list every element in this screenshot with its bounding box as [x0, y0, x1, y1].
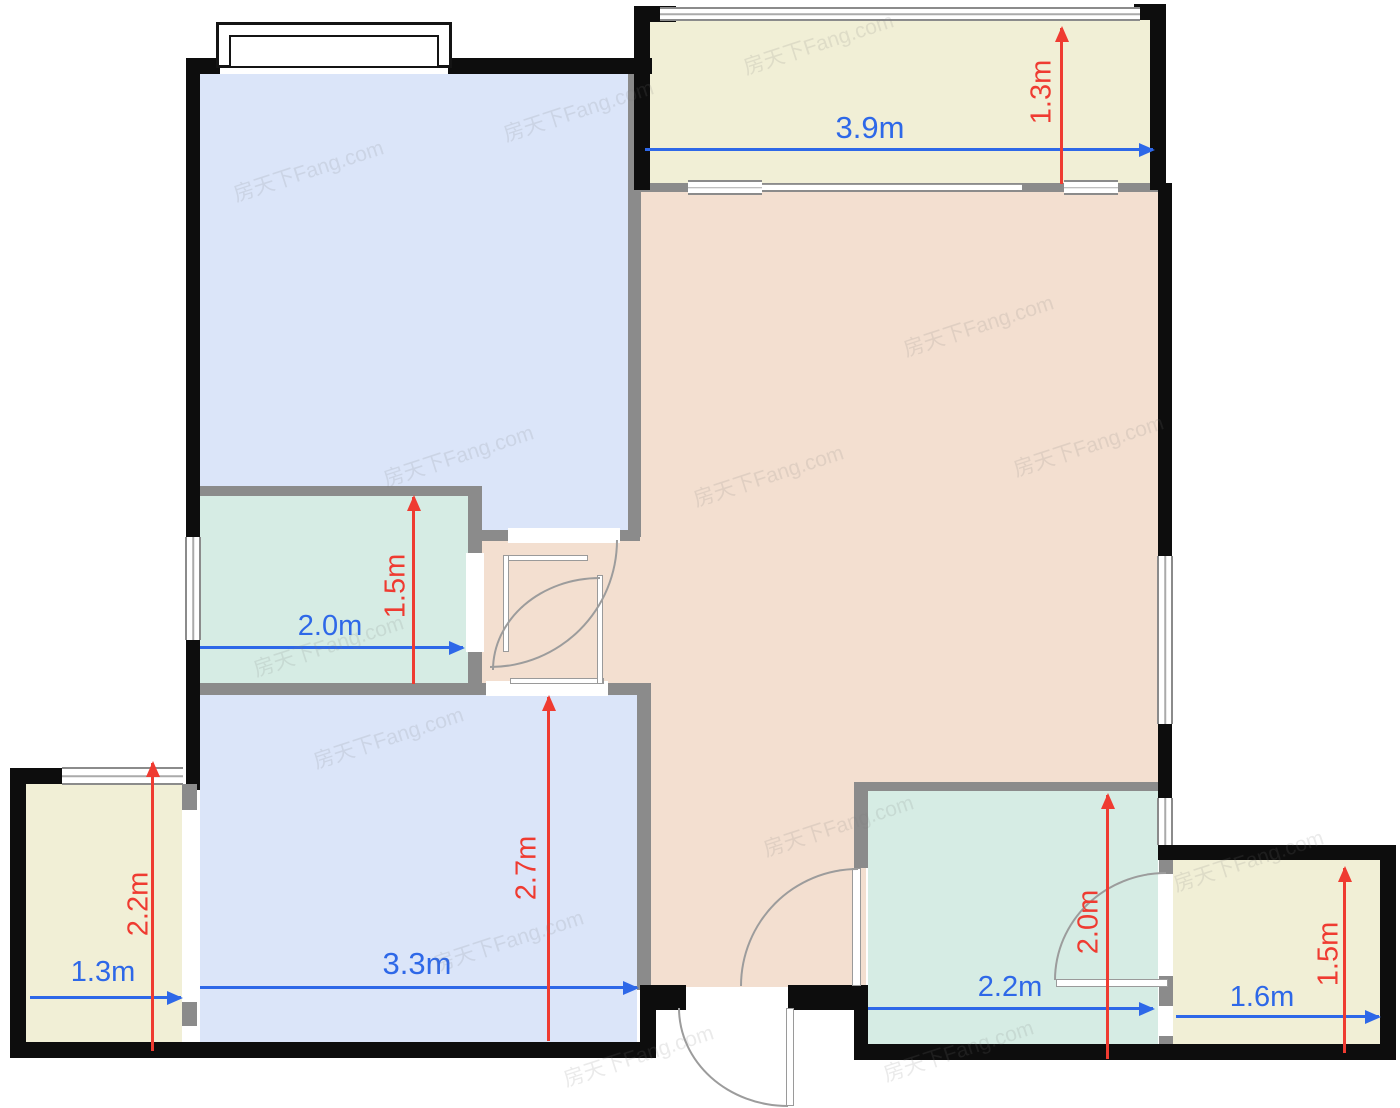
dim-label-bathroom-width: 2.0m	[298, 610, 362, 643]
room-balcony-right	[1172, 860, 1380, 1048]
divider-cap-bottom	[182, 1002, 197, 1026]
dim-label-balcony-right-width: 1.6m	[1230, 981, 1294, 1014]
wall-kitchen-left-upper	[854, 782, 868, 868]
wall-kitchen-top	[854, 782, 1160, 791]
divider-cap-top	[182, 784, 197, 810]
window-bathroom-left	[185, 537, 201, 640]
bay-window-inner	[229, 35, 439, 68]
dim-line-balcony-right-width	[1176, 1015, 1379, 1018]
wall-bedroom-bottom-right	[637, 683, 651, 990]
floor-plan: 3.9m 2.0m 3.3m 1.3m 2.2m 1.6m 1.3m 1.5m …	[0, 0, 1400, 1108]
dim-label-kitchen-width: 2.2m	[978, 971, 1042, 1004]
wall-bathroom-top	[196, 486, 470, 496]
room-bathroom	[200, 496, 468, 683]
dim-line-bedroom-bottom-width	[200, 986, 637, 989]
dim-label-balcony-left-width: 1.3m	[71, 956, 135, 989]
dim-label-balcony-right-depth: 1.5m	[1313, 922, 1346, 986]
wall-right-mid	[1158, 724, 1172, 800]
door-arc-entrance	[678, 1008, 788, 1107]
window-kitchen-right	[1157, 798, 1173, 845]
room-living	[638, 192, 1158, 790]
dim-line-balcony-top-width	[645, 148, 1153, 151]
room-balcony-left	[26, 784, 182, 1042]
dim-label-bathroom-depth: 1.5m	[380, 554, 413, 618]
wall-bottom-right	[854, 1044, 1396, 1060]
wall-left-lower	[186, 640, 200, 790]
wall-balcony-right-side	[1380, 845, 1396, 1060]
dim-line-bathroom-width	[200, 646, 463, 649]
door-opening-bathroom	[466, 553, 484, 652]
dim-line-kitchen-width	[868, 1007, 1153, 1010]
room-bedroom-bottom	[200, 695, 637, 1042]
door-leaf-hall-c	[510, 678, 604, 684]
wall-entry-left	[656, 985, 686, 1010]
wall-bedroom-se	[640, 985, 656, 1058]
window-living-balcony-b	[1064, 180, 1118, 195]
dim-label-bedroom-bottom-depth: 2.7m	[511, 836, 544, 900]
dim-line-balcony-top-depth	[1060, 28, 1063, 184]
wall-right-upper	[1158, 183, 1172, 556]
wall-balcony-left-side	[10, 768, 26, 1058]
dim-label-balcony-top-depth: 1.3m	[1026, 60, 1059, 124]
wall-kitchen-left-lower	[854, 985, 868, 1044]
wall-top-left-b	[448, 58, 652, 74]
door-leaf-balcony-right	[1056, 979, 1168, 987]
room-bedroom-top	[200, 74, 638, 488]
sliding-track-balcony-top	[762, 184, 1022, 190]
window-balcony-left-top	[62, 767, 183, 785]
room-balcony-top	[650, 20, 1158, 183]
wall-balcony-top-right	[1150, 4, 1166, 190]
dim-label-bedroom-bottom-width: 3.3m	[383, 946, 452, 982]
dim-line-balcony-left-width	[30, 996, 181, 999]
dim-line-bedroom-bottom-depth	[547, 697, 550, 1041]
wall-bottom-left	[10, 1042, 656, 1058]
window-living-right	[1157, 556, 1173, 724]
dim-label-kitchen-depth: 2.0m	[1073, 890, 1106, 954]
dim-line-kitchen-depth	[1106, 795, 1109, 1059]
wall-left-upper	[186, 58, 200, 537]
dim-label-balcony-left-depth: 2.2m	[123, 872, 156, 936]
dim-label-balcony-top-width: 3.9m	[836, 110, 905, 146]
window-balcony-top	[660, 7, 1140, 21]
wall-balcony-right-top	[1158, 845, 1396, 860]
window-living-balcony-a	[688, 180, 762, 195]
divider2-cap-bottom	[1159, 1036, 1173, 1044]
wall-balcony-top-left	[634, 6, 650, 190]
